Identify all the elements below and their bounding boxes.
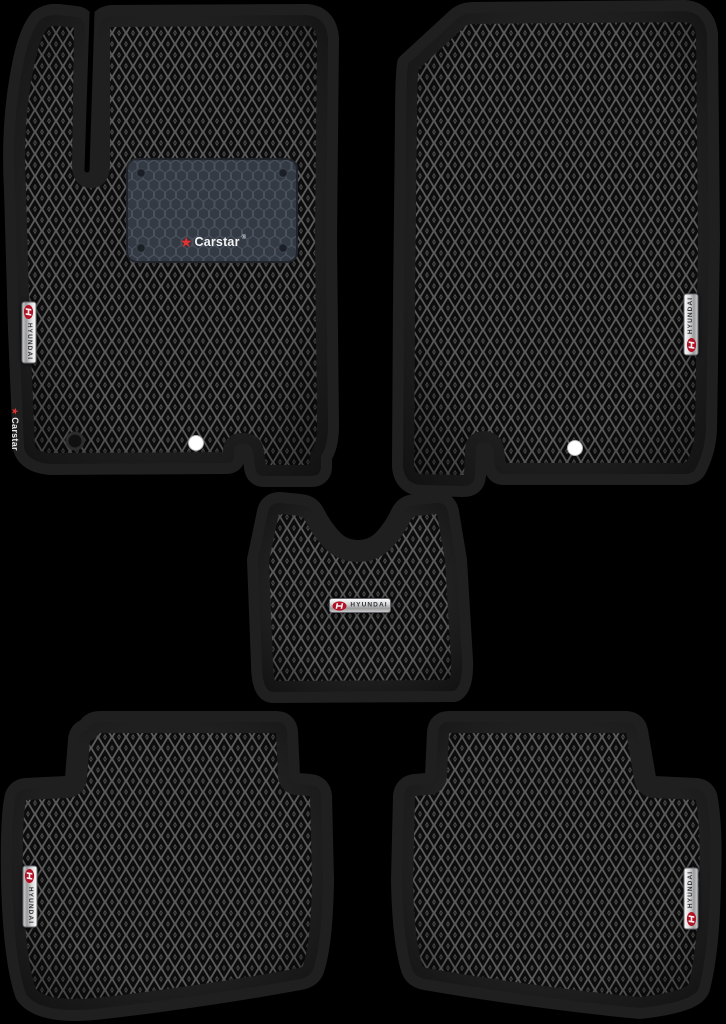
- hyundai-badge-rear-right: HYUNDAI: [684, 868, 699, 930]
- hyundai-badge-rear-left: HYUNDAI: [23, 866, 38, 928]
- rear-right-mat: [402, 722, 711, 1008]
- hyundai-h-icon: [686, 911, 696, 926]
- floor-mats-graphic: [0, 0, 726, 1024]
- hyundai-h-icon: [25, 869, 35, 884]
- hyundai-wordmark: HYUNDAI: [688, 297, 695, 334]
- carstar-side-label: ★Carstar: [9, 402, 21, 456]
- carstar-heel-logo: ★Carstar®: [173, 233, 253, 251]
- mat-fixing-hole: [67, 433, 83, 449]
- hyundai-wordmark: HYUNDAI: [350, 603, 387, 610]
- mat-fastener-dot: [568, 441, 583, 456]
- hyundai-badge-front-right: HYUNDAI: [684, 294, 699, 356]
- hyundai-h-icon: [332, 601, 347, 611]
- hyundai-wordmark: HYUNDAI: [688, 871, 695, 908]
- registered-trademark: ®: [242, 235, 246, 241]
- carstar-wordmark: Carstar: [194, 236, 239, 249]
- front-left-mat: [14, 14, 328, 476]
- hyundai-wordmark: HYUNDAI: [25, 323, 32, 360]
- hyundai-h-icon: [24, 305, 34, 320]
- rear-left-mat: [12, 722, 323, 1010]
- carstar-wordmark: Carstar: [11, 417, 20, 451]
- front-right-mat: [403, 11, 709, 486]
- hyundai-h-icon: [686, 337, 696, 352]
- hyundai-wordmark: HYUNDAI: [26, 887, 33, 924]
- carstar-star-icon: ★: [11, 407, 20, 415]
- product-photo: ★Carstar® ★Carstar HYUNDAI HYUNDAI HYUND…: [0, 0, 726, 1024]
- hyundai-badge-tunnel: HYUNDAI: [329, 598, 391, 613]
- hyundai-badge-front-left: HYUNDAI: [22, 302, 37, 364]
- carstar-star-icon: ★: [180, 235, 193, 249]
- mat-fastener-dot: [189, 436, 204, 451]
